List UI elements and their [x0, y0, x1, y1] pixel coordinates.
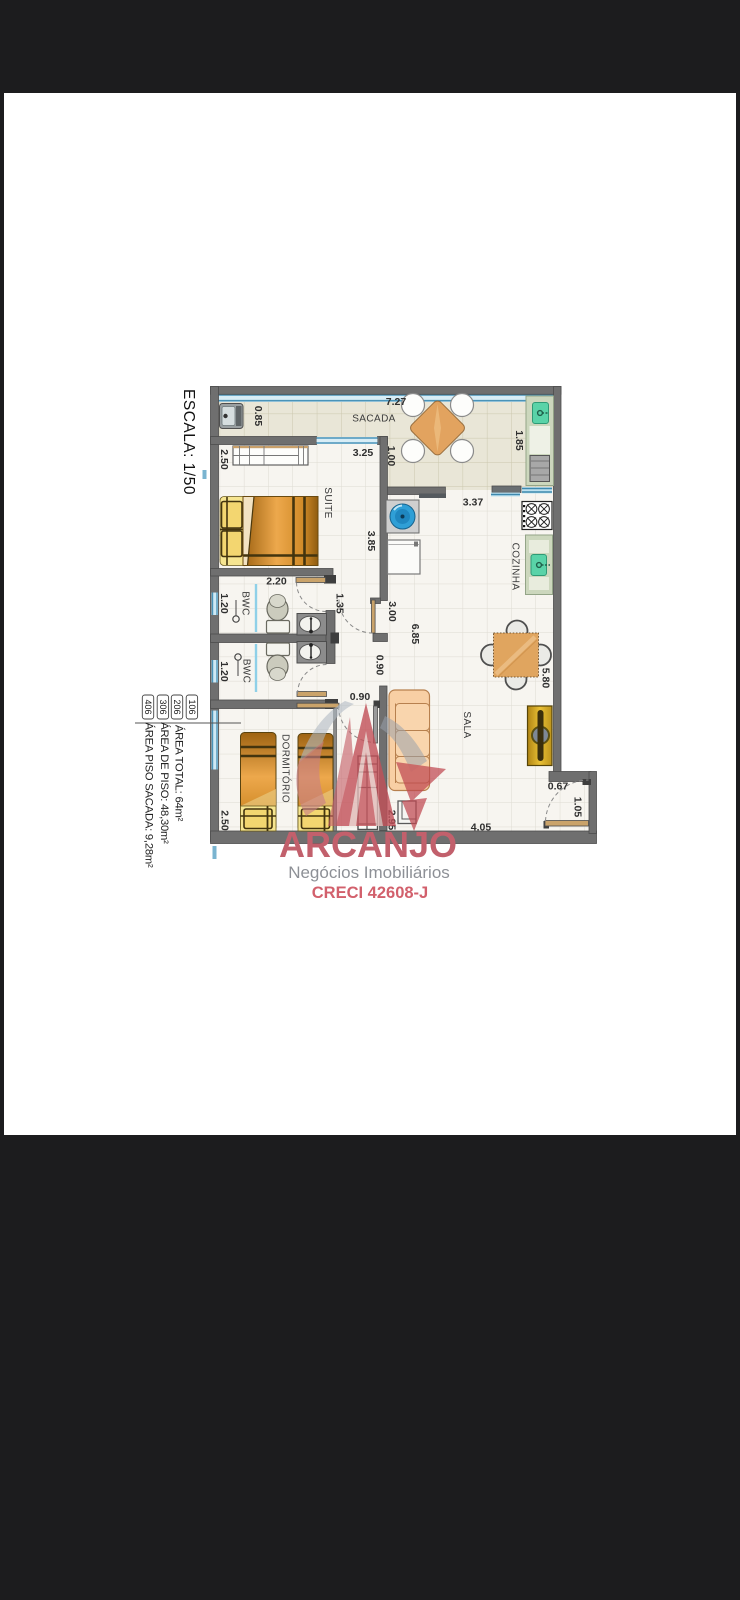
svg-text:406: 406: [143, 699, 153, 714]
svg-text:1.20: 1.20: [218, 593, 230, 614]
svg-text:3.85: 3.85: [365, 531, 377, 552]
svg-text:CRECI 42608-J: CRECI 42608-J: [312, 884, 428, 902]
svg-text:0.67: 0.67: [548, 781, 569, 793]
svg-text:SACADA: SACADA: [352, 414, 396, 425]
svg-text:1.85: 1.85: [513, 430, 525, 451]
svg-text:COZINHA: COZINHA: [510, 543, 521, 591]
svg-text:SALA: SALA: [461, 711, 472, 738]
svg-text:0.90: 0.90: [350, 691, 371, 703]
svg-text:306: 306: [158, 699, 168, 714]
svg-text:0.90: 0.90: [374, 655, 386, 676]
svg-text:1.05: 1.05: [572, 797, 584, 818]
svg-text:Negócios Imobiliários: Negócios Imobiliários: [288, 863, 450, 882]
svg-text:1.00: 1.00: [385, 446, 397, 467]
svg-text:2.50: 2.50: [219, 810, 231, 831]
svg-text:3.37: 3.37: [463, 497, 484, 509]
svg-text:5.80: 5.80: [540, 668, 552, 689]
svg-text:SUITE: SUITE: [322, 487, 333, 518]
svg-text:0.85: 0.85: [252, 406, 264, 427]
svg-text:ESCALA: 1/50: ESCALA: 1/50: [180, 389, 197, 495]
svg-text:1.35: 1.35: [334, 593, 346, 614]
svg-text:206: 206: [172, 699, 182, 714]
svg-text:ARCANJO: ARCANJO: [279, 824, 457, 865]
svg-text:3.00: 3.00: [386, 601, 398, 622]
svg-text:7.27: 7.27: [386, 396, 407, 408]
svg-text:3.25: 3.25: [353, 447, 374, 459]
svg-text:ÁREA PISO SACADA: 9,28m²: ÁREA PISO SACADA: 9,28m²: [142, 722, 155, 868]
svg-text:DORMITÓRIO: DORMITÓRIO: [280, 734, 293, 803]
svg-text:BWC: BWC: [241, 659, 252, 684]
svg-text:ÁREA TOTAL: 64m²: ÁREA TOTAL: 64m²: [173, 725, 186, 822]
svg-text:2.20: 2.20: [266, 576, 287, 588]
svg-text:BWC: BWC: [240, 591, 251, 616]
svg-text:6.85: 6.85: [409, 624, 421, 645]
svg-text:2.50: 2.50: [218, 449, 230, 470]
svg-text:4.05: 4.05: [471, 822, 492, 834]
svg-text:106: 106: [187, 699, 197, 714]
svg-text:1.20: 1.20: [218, 661, 230, 682]
svg-text:ÁREA DE PISO: 48,30m²: ÁREA DE PISO: 48,30m²: [158, 722, 171, 844]
